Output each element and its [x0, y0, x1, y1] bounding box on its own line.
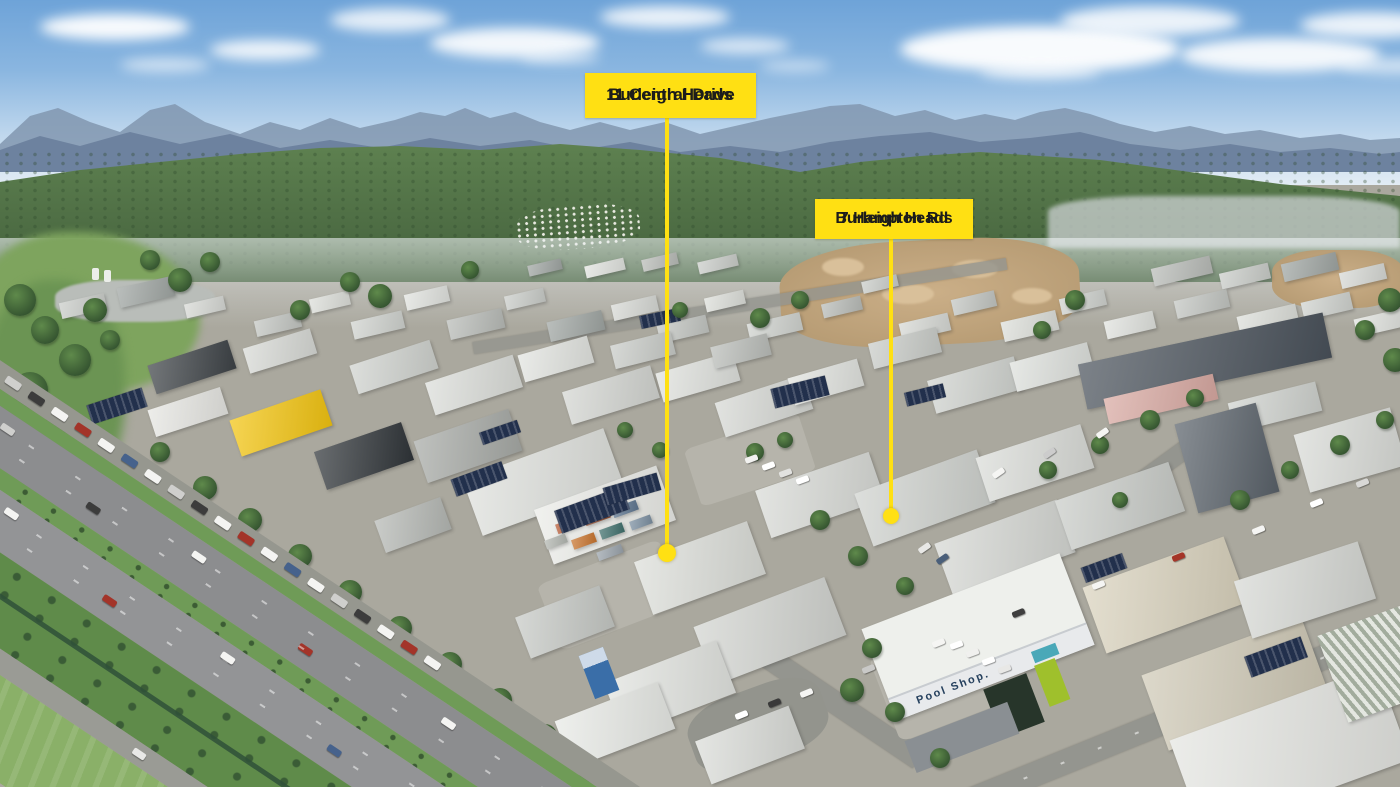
cloud	[600, 6, 730, 28]
tree	[368, 284, 392, 308]
dirt-mound	[822, 258, 864, 276]
parked-vehicle	[260, 546, 279, 562]
parked-vehicle	[377, 624, 396, 640]
silo	[92, 268, 99, 280]
vehicle	[101, 594, 117, 608]
suburb-line: Burleigh Heads	[835, 209, 952, 229]
property-label: 11 Central Drive Burleigh Heads	[585, 73, 756, 118]
vehicle	[1251, 525, 1265, 535]
vehicle	[440, 716, 456, 730]
parked-vehicle	[144, 468, 163, 484]
vehicle	[131, 747, 147, 761]
parked-vehicle	[330, 593, 349, 609]
tree	[848, 546, 868, 566]
tree	[1230, 490, 1250, 510]
tree	[750, 308, 770, 328]
vehicle	[191, 550, 207, 564]
tree	[1376, 411, 1394, 429]
tree	[83, 298, 107, 322]
parked-vehicle	[283, 562, 302, 578]
marker-leader-line	[889, 239, 893, 516]
tree	[1112, 492, 1128, 508]
cloud	[120, 58, 210, 72]
tree	[1281, 461, 1299, 479]
tree	[840, 678, 864, 702]
tree	[200, 252, 220, 272]
tree	[168, 268, 192, 292]
cloud	[520, 52, 600, 64]
parked-vehicle	[307, 577, 326, 593]
dirt-mound	[1012, 288, 1052, 304]
parked-vehicle	[423, 655, 442, 671]
tree	[1033, 321, 1051, 339]
tree	[777, 432, 793, 448]
tree	[1039, 461, 1057, 479]
vehicle	[0, 422, 16, 436]
building	[148, 387, 229, 437]
vehicle	[220, 651, 236, 665]
parked-vehicle	[167, 484, 186, 500]
building	[425, 355, 523, 416]
building	[243, 328, 318, 373]
cloud	[980, 64, 1100, 80]
parked-vehicle	[190, 500, 209, 516]
tree	[31, 316, 59, 344]
tree	[672, 302, 688, 318]
vehicle	[85, 501, 101, 515]
parked-vehicle	[353, 608, 372, 624]
marker-dot	[658, 544, 676, 562]
blue-pylon-sign	[579, 647, 620, 699]
parked-vehicle	[27, 391, 46, 407]
tree	[617, 422, 633, 438]
tree	[862, 638, 882, 658]
parked-vehicle	[97, 437, 116, 453]
tree	[1065, 290, 1085, 310]
building	[710, 333, 772, 368]
building	[374, 497, 451, 553]
tree	[930, 748, 950, 768]
tree	[100, 330, 120, 350]
tree	[1091, 436, 1109, 454]
cloud	[700, 38, 790, 54]
vehicle	[1309, 498, 1323, 508]
parked-vehicle	[4, 375, 23, 391]
building	[1083, 536, 1248, 653]
silo	[104, 270, 111, 282]
vehicle	[326, 744, 342, 758]
vehicle	[917, 542, 931, 554]
tree	[791, 291, 809, 309]
property-label: 7 Hampton Rd Burleigh Heads	[815, 199, 973, 239]
cloud	[40, 14, 190, 40]
tree	[1140, 410, 1160, 430]
tree	[1383, 348, 1400, 372]
vehicle	[1355, 478, 1369, 488]
tree	[340, 272, 360, 292]
parked-vehicle	[74, 422, 93, 438]
vehicle	[3, 507, 19, 521]
tree	[59, 344, 91, 376]
tree	[150, 442, 170, 462]
tree	[1330, 435, 1350, 455]
parked-vehicle	[50, 406, 69, 422]
building	[634, 521, 766, 615]
marker-dot	[883, 508, 899, 524]
parked-vehicle	[237, 531, 256, 547]
cloud	[210, 40, 320, 60]
tree	[1378, 288, 1400, 312]
parked-vehicle	[120, 453, 139, 469]
marker-leader-line	[665, 118, 669, 553]
building	[314, 422, 414, 490]
suburb-line: Burleigh Heads	[608, 85, 733, 106]
tree	[810, 510, 830, 530]
parked-vehicle	[213, 515, 232, 531]
parked-vehicle	[400, 639, 419, 655]
cloud	[760, 60, 830, 72]
tree	[140, 250, 160, 270]
vehicle	[297, 643, 313, 657]
lime-sign-panel	[1034, 658, 1070, 707]
tree	[4, 284, 36, 316]
tree	[896, 577, 914, 595]
building	[976, 424, 1095, 502]
tree	[290, 300, 310, 320]
building	[229, 389, 332, 456]
cloud	[1060, 6, 1240, 36]
aerial-photo: Pool Shop. 11 Central Drive Burleigh Hea…	[0, 0, 1400, 787]
tree	[885, 702, 905, 722]
tree	[461, 261, 479, 279]
cloud	[330, 8, 450, 32]
building	[562, 365, 660, 424]
tree	[1355, 320, 1375, 340]
tree	[1186, 389, 1204, 407]
